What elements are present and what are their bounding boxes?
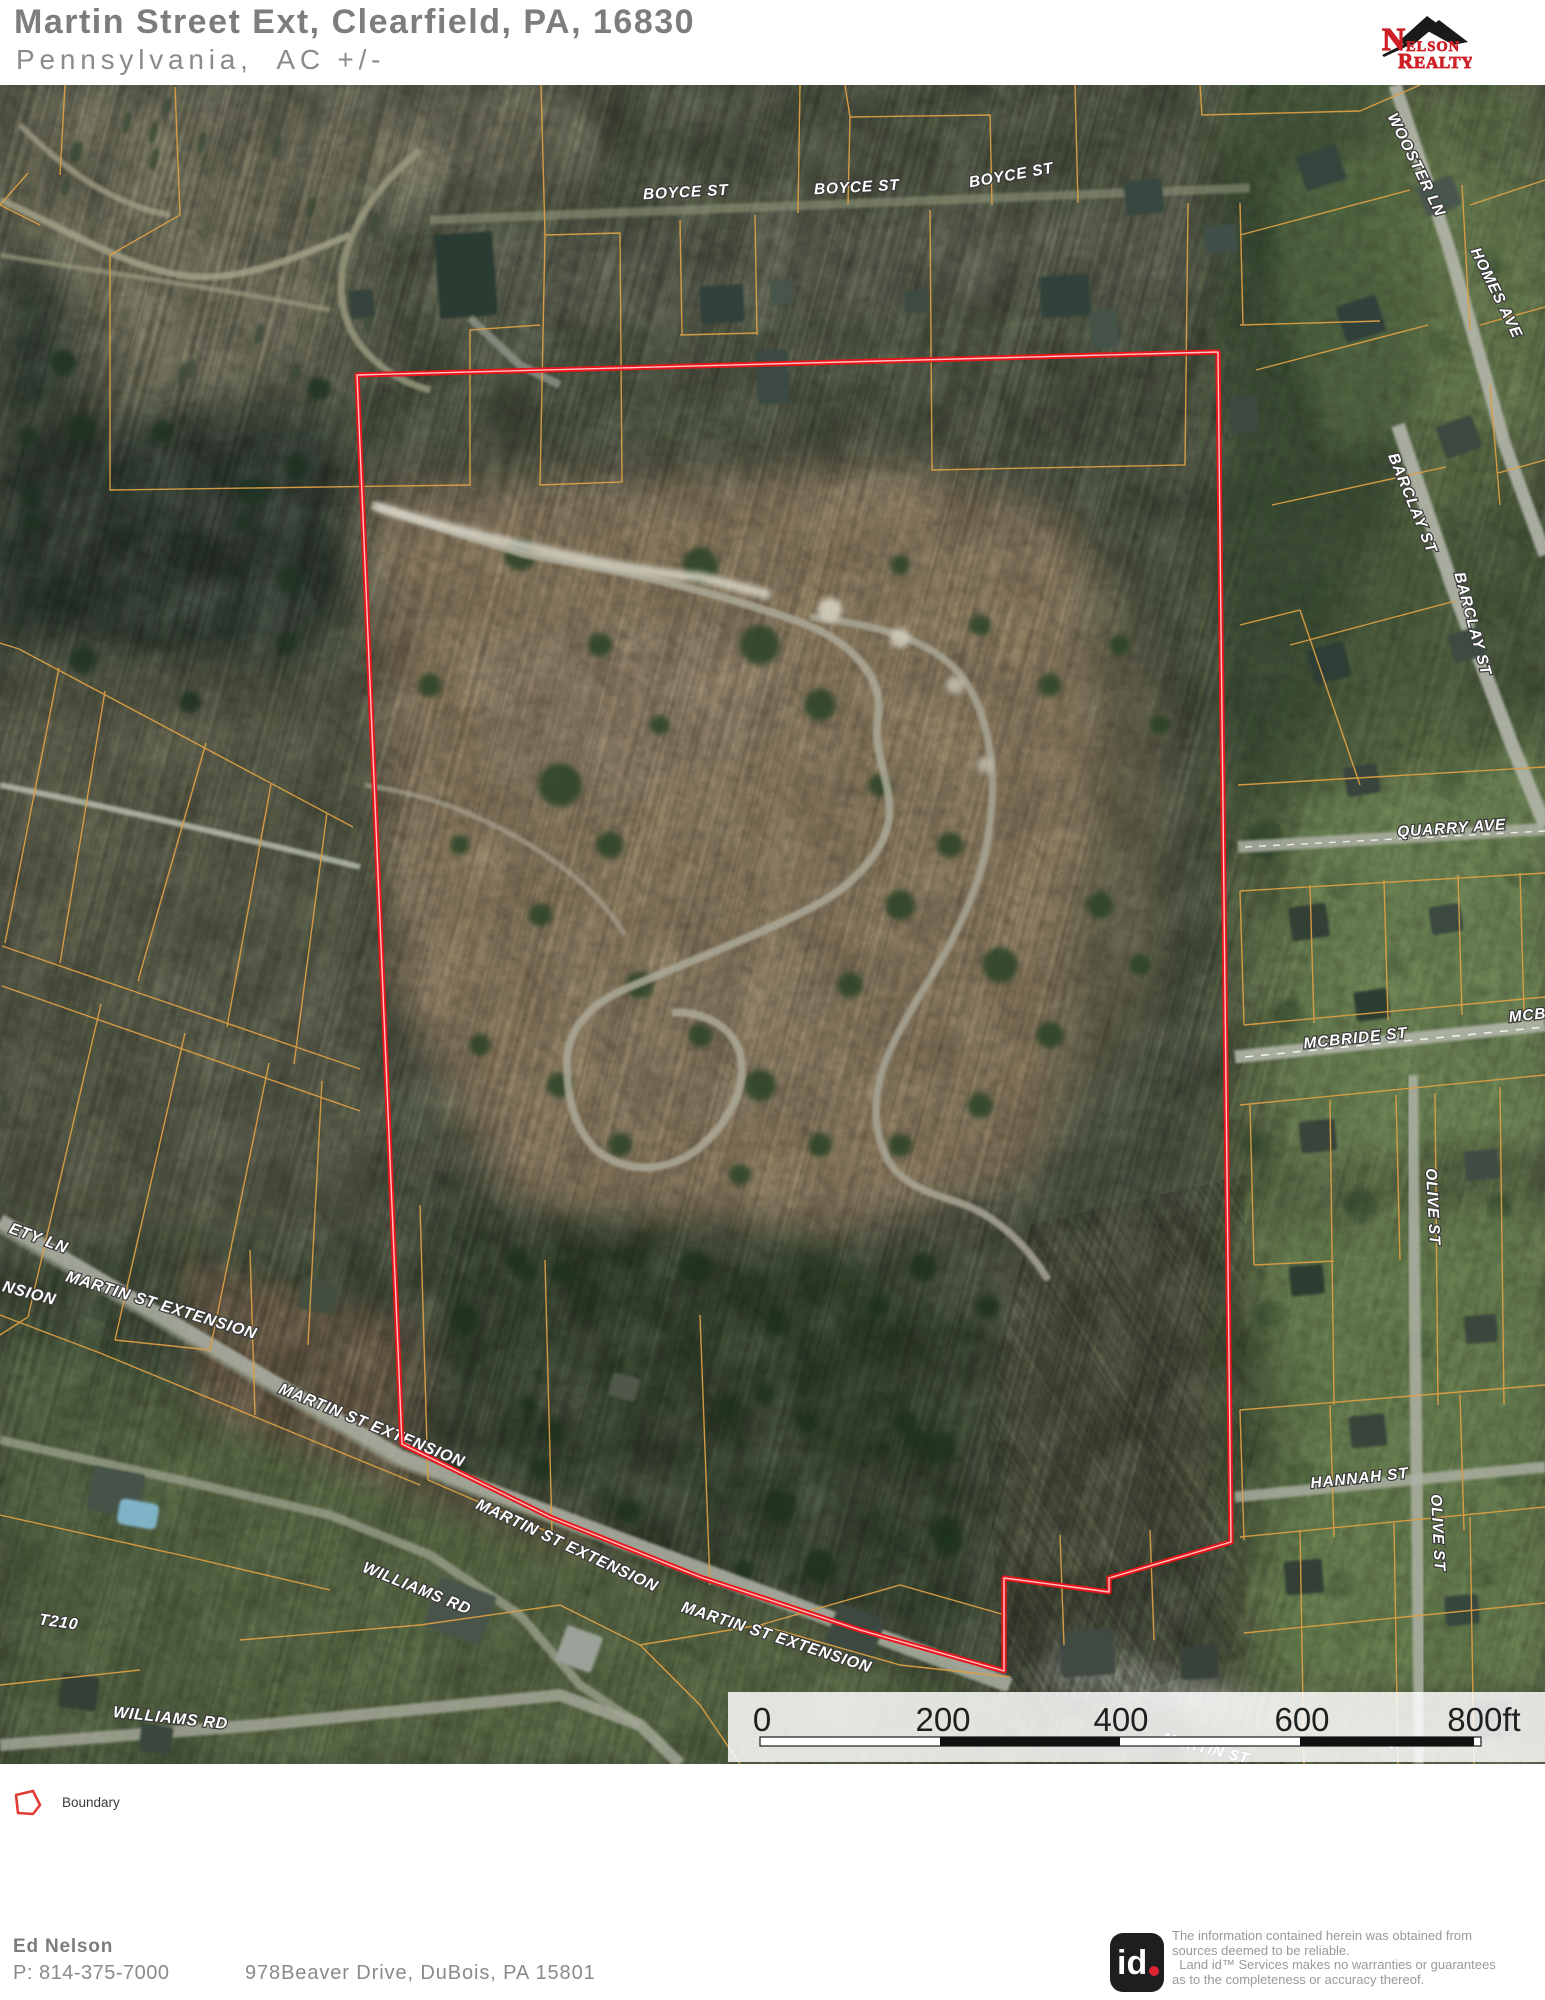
svg-text:600: 600 <box>1274 1701 1329 1738</box>
svg-text:800ft: 800ft <box>1447 1701 1520 1738</box>
svg-text:400: 400 <box>1093 1701 1148 1738</box>
svg-text:EALTY: EALTY <box>1414 53 1472 72</box>
svg-text:200: 200 <box>915 1701 970 1738</box>
svg-text:R: R <box>1398 49 1414 72</box>
svg-text:0: 0 <box>753 1701 771 1738</box>
svg-text:id: id <box>1117 1944 1147 1982</box>
